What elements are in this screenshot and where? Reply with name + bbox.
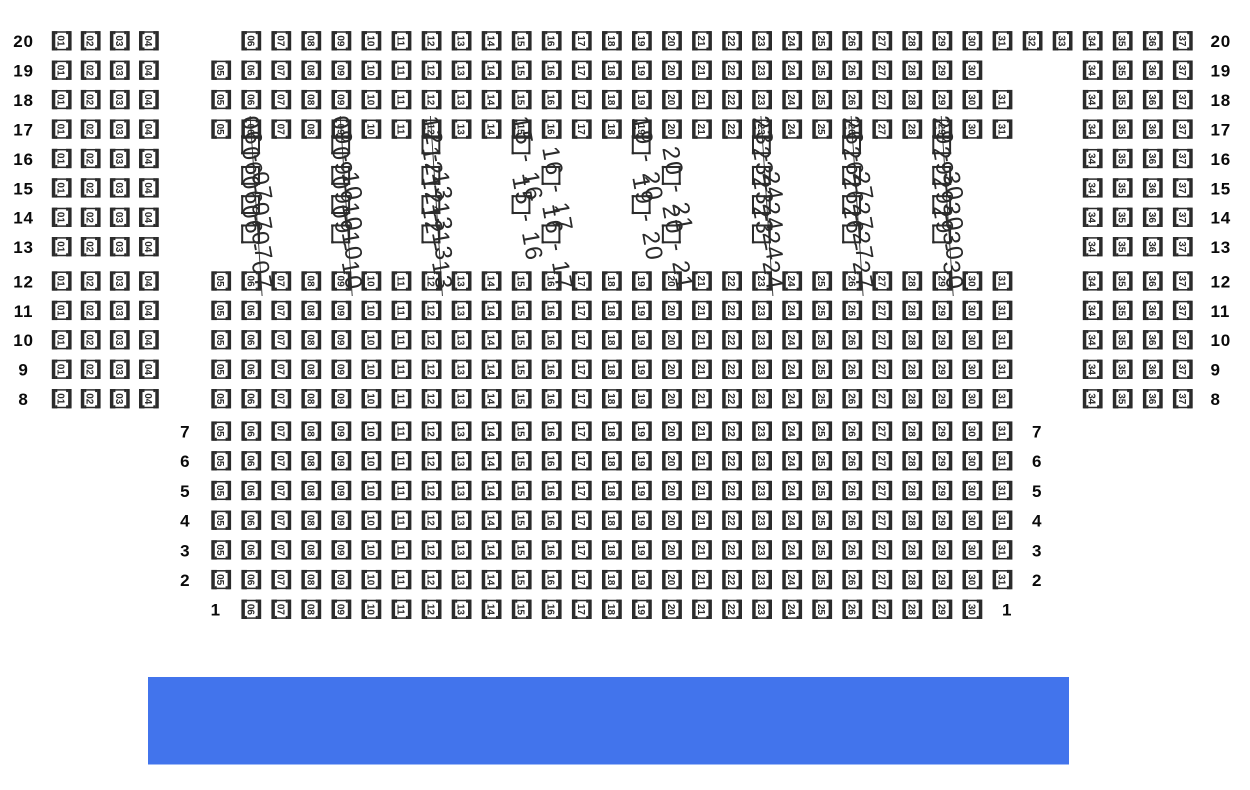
svg-text:36: 36 — [1146, 212, 1157, 224]
svg-text:15: 15 — [515, 276, 526, 288]
svg-text:04: 04 — [142, 212, 153, 224]
svg-text:2: 2 — [1032, 571, 1042, 590]
svg-text:02: 02 — [84, 212, 95, 224]
svg-text:23: 23 — [755, 604, 766, 616]
svg-text:21: 21 — [695, 604, 706, 616]
svg-text:11: 11 — [395, 515, 406, 526]
svg-text:05: 05 — [214, 574, 225, 586]
svg-text:13: 13 — [455, 124, 466, 136]
svg-text:04: 04 — [142, 305, 153, 317]
svg-text:09: 09 — [334, 455, 345, 467]
svg-text:36: 36 — [1146, 153, 1157, 165]
svg-text:35: 35 — [1116, 94, 1127, 106]
svg-text:37: 37 — [1176, 153, 1187, 165]
svg-text:5: 5 — [1032, 482, 1042, 501]
svg-text:35: 35 — [1116, 241, 1127, 253]
svg-text:36: 36 — [1146, 241, 1157, 253]
svg-text:11: 11 — [395, 604, 406, 615]
svg-text:07: 07 — [274, 334, 285, 346]
svg-text:26: 26 — [845, 426, 856, 438]
svg-text:17: 17 — [575, 544, 586, 556]
svg-text:16: 16 — [545, 94, 556, 106]
svg-text:29: 29 — [935, 35, 946, 47]
svg-text:09: 09 — [334, 364, 345, 376]
svg-text:23: 23 — [755, 35, 766, 47]
svg-text:25: 25 — [815, 485, 826, 497]
svg-text:17: 17 — [575, 485, 586, 497]
svg-text:35: 35 — [1116, 153, 1127, 165]
svg-text:24: 24 — [785, 393, 796, 405]
svg-text:05: 05 — [214, 276, 225, 288]
svg-text:20: 20 — [13, 32, 34, 51]
svg-text:02: 02 — [84, 241, 95, 253]
svg-text:19: 19 — [635, 544, 646, 556]
svg-text:12: 12 — [425, 364, 436, 376]
svg-text:01: 01 — [55, 364, 66, 376]
svg-text:28: 28 — [905, 455, 916, 467]
svg-text:09: 09 — [334, 65, 345, 77]
svg-text:31: 31 — [996, 305, 1007, 317]
svg-text:26: 26 — [845, 364, 856, 376]
svg-text:18: 18 — [605, 305, 616, 317]
svg-text:36: 36 — [1146, 124, 1157, 136]
svg-text:30: 30 — [966, 604, 977, 616]
svg-text:1: 1 — [1002, 601, 1012, 620]
svg-text:03: 03 — [113, 276, 124, 288]
svg-text:08: 08 — [304, 544, 315, 556]
svg-text:16: 16 — [545, 124, 556, 136]
svg-text:21: 21 — [695, 455, 706, 467]
svg-text:35: 35 — [1116, 393, 1127, 405]
svg-text:08: 08 — [304, 305, 315, 317]
svg-text:28: 28 — [905, 364, 916, 376]
svg-text:04: 04 — [142, 182, 153, 194]
svg-text:15: 15 — [515, 455, 526, 467]
svg-text:25: 25 — [815, 305, 826, 317]
svg-text:14: 14 — [485, 305, 496, 317]
svg-text:05: 05 — [214, 485, 225, 497]
svg-text:29: 29 — [935, 65, 946, 77]
svg-text:25: 25 — [815, 35, 826, 47]
svg-text:23: 23 — [755, 393, 766, 405]
svg-text:01: 01 — [55, 305, 66, 317]
svg-text:19: 19 — [13, 62, 34, 81]
svg-text:01: 01 — [55, 65, 66, 77]
svg-text:37: 37 — [1176, 364, 1187, 376]
svg-text:20: 20 — [665, 515, 676, 527]
svg-text:25: 25 — [815, 455, 826, 467]
svg-text:34: 34 — [1086, 364, 1097, 376]
svg-text:02: 02 — [84, 276, 95, 288]
svg-text:14: 14 — [485, 334, 496, 346]
svg-text:01: 01 — [55, 153, 66, 165]
svg-text:27: 27 — [875, 334, 886, 346]
svg-text:12: 12 — [425, 94, 436, 106]
svg-text:29: 29 — [935, 485, 946, 497]
svg-text:27: 27 — [875, 574, 886, 586]
svg-text:05: 05 — [214, 544, 225, 556]
svg-text:03: 03 — [113, 364, 124, 376]
svg-text:08: 08 — [304, 393, 315, 405]
svg-text:07: 07 — [274, 124, 285, 136]
svg-text:36: 36 — [1146, 35, 1157, 47]
svg-text:16: 16 — [545, 364, 556, 376]
svg-text:30: 30 — [966, 124, 977, 136]
svg-text:04: 04 — [142, 153, 153, 165]
svg-text:37: 37 — [1176, 182, 1187, 194]
svg-text:24: 24 — [785, 94, 796, 106]
svg-text:05: 05 — [214, 305, 225, 317]
svg-text:19: 19 — [635, 334, 646, 346]
svg-text:07: 07 — [274, 544, 285, 556]
svg-text:24: 24 — [785, 124, 796, 136]
svg-text:21: 21 — [695, 426, 706, 438]
svg-text:06: 06 — [244, 65, 255, 77]
svg-text:13: 13 — [1211, 238, 1232, 257]
svg-text:20: 20 — [665, 604, 676, 616]
svg-text:34: 34 — [1086, 182, 1097, 194]
svg-text:18: 18 — [605, 364, 616, 376]
svg-text:26: 26 — [845, 393, 856, 405]
svg-text:16: 16 — [545, 455, 556, 467]
svg-text:15: 15 — [515, 515, 526, 527]
svg-text:18: 18 — [605, 515, 616, 527]
svg-text:23: 23 — [755, 426, 766, 438]
svg-text:28: 28 — [905, 305, 916, 317]
svg-text:24: 24 — [785, 515, 796, 527]
svg-text:08: 08 — [304, 276, 315, 288]
svg-text:09: 09 — [334, 35, 345, 47]
svg-text:25: 25 — [815, 393, 826, 405]
svg-text:28: 28 — [905, 65, 916, 77]
svg-text:28: 28 — [905, 124, 916, 136]
svg-text:15: 15 — [515, 485, 526, 497]
svg-text:10: 10 — [364, 393, 375, 405]
svg-text:20: 20 — [665, 334, 676, 346]
svg-text:23: 23 — [755, 515, 766, 527]
svg-text:13: 13 — [13, 238, 34, 257]
svg-text:18: 18 — [605, 485, 616, 497]
svg-text:22: 22 — [725, 455, 736, 467]
svg-text:08: 08 — [304, 455, 315, 467]
svg-text:07: 07 — [274, 393, 285, 405]
svg-text:35: 35 — [1116, 124, 1127, 136]
svg-text:22: 22 — [725, 515, 736, 527]
svg-text:6: 6 — [180, 452, 190, 471]
svg-text:05: 05 — [214, 515, 225, 527]
svg-text:29: 29 — [935, 515, 946, 527]
svg-text:31: 31 — [996, 276, 1007, 288]
svg-text:14: 14 — [485, 544, 496, 556]
svg-text:6: 6 — [1032, 452, 1042, 471]
svg-text:06: 06 — [244, 604, 255, 616]
svg-text:10: 10 — [364, 35, 375, 47]
svg-text:14: 14 — [1211, 209, 1232, 228]
svg-text:24: 24 — [785, 604, 796, 616]
svg-text:23: 23 — [755, 574, 766, 586]
svg-text:10: 10 — [364, 364, 375, 376]
svg-text:24: 24 — [785, 544, 796, 556]
svg-text:06: 06 — [244, 364, 255, 376]
svg-text:7: 7 — [1032, 423, 1042, 442]
svg-text:25: 25 — [815, 276, 826, 288]
svg-text:08: 08 — [304, 364, 315, 376]
svg-text:21: 21 — [695, 305, 706, 317]
svg-text:18: 18 — [605, 544, 616, 556]
svg-text:14: 14 — [485, 276, 496, 288]
svg-text:17: 17 — [575, 94, 586, 106]
svg-text:22: 22 — [725, 485, 736, 497]
svg-text:37: 37 — [1176, 65, 1187, 77]
svg-text:12: 12 — [425, 35, 436, 47]
svg-text:26: 26 — [845, 515, 856, 527]
svg-text:12: 12 — [425, 426, 436, 438]
svg-text:31: 31 — [996, 334, 1007, 346]
svg-text:18: 18 — [1211, 91, 1232, 110]
svg-text:13: 13 — [455, 94, 466, 106]
svg-text:33: 33 — [1056, 35, 1067, 47]
svg-text:03: 03 — [113, 393, 124, 405]
svg-text:14: 14 — [485, 393, 496, 405]
svg-text:11: 11 — [395, 364, 406, 375]
svg-text:05: 05 — [214, 455, 225, 467]
svg-text:09: 09 — [334, 544, 345, 556]
svg-text:19: 19 — [635, 35, 646, 47]
svg-text:20: 20 — [665, 124, 676, 136]
svg-text:22: 22 — [725, 124, 736, 136]
svg-text:28: 28 — [905, 515, 916, 527]
svg-text:17: 17 — [575, 334, 586, 346]
svg-text:10: 10 — [364, 305, 375, 317]
svg-text:16: 16 — [1211, 150, 1232, 169]
svg-text:02: 02 — [84, 35, 95, 47]
svg-text:20: 20 — [665, 544, 676, 556]
svg-text:19: 19 — [635, 65, 646, 77]
svg-text:16: 16 — [545, 305, 556, 317]
svg-text:28: 28 — [905, 94, 916, 106]
svg-text:21: 21 — [695, 94, 706, 106]
svg-text:20: 20 — [1211, 32, 1232, 51]
svg-text:08: 08 — [304, 515, 315, 527]
svg-text:12: 12 — [425, 515, 436, 527]
svg-text:13: 13 — [455, 485, 466, 497]
svg-text:07: 07 — [274, 65, 285, 77]
svg-text:17: 17 — [575, 364, 586, 376]
svg-text:04: 04 — [142, 364, 153, 376]
svg-text:13: 13 — [455, 305, 466, 317]
svg-text:07: 07 — [274, 485, 285, 497]
svg-text:16: 16 — [545, 334, 556, 346]
svg-text:7: 7 — [180, 423, 190, 442]
svg-text:27: 27 — [875, 364, 886, 376]
svg-text:14: 14 — [485, 65, 496, 77]
svg-text:12: 12 — [425, 305, 436, 317]
svg-text:19: 19 — [635, 393, 646, 405]
svg-text:30: 30 — [966, 393, 977, 405]
svg-text:13: 13 — [455, 35, 466, 47]
svg-text:17: 17 — [575, 426, 586, 438]
svg-text:34: 34 — [1086, 241, 1097, 253]
svg-text:08: 08 — [304, 485, 315, 497]
svg-text:11: 11 — [1211, 302, 1231, 321]
svg-text:09: 09 — [334, 574, 345, 586]
svg-text:30: 30 — [966, 455, 977, 467]
svg-text:05: 05 — [214, 124, 225, 136]
svg-text:27: 27 — [875, 124, 886, 136]
svg-text:30: 30 — [966, 574, 977, 586]
svg-text:01: 01 — [55, 94, 66, 106]
svg-text:05: 05 — [214, 334, 225, 346]
svg-text:10: 10 — [364, 455, 375, 467]
svg-text:25: 25 — [815, 124, 826, 136]
svg-text:19: 19 — [635, 426, 646, 438]
svg-text:11: 11 — [395, 65, 406, 76]
svg-text:18: 18 — [605, 94, 616, 106]
svg-text:01: 01 — [55, 124, 66, 136]
svg-text:13: 13 — [455, 65, 466, 77]
svg-text:4: 4 — [1032, 512, 1042, 531]
svg-text:15: 15 — [1211, 179, 1232, 198]
svg-text:09: 09 — [334, 485, 345, 497]
svg-text:11: 11 — [395, 574, 406, 585]
svg-text:2: 2 — [180, 571, 190, 590]
svg-text:24: 24 — [785, 35, 796, 47]
svg-text:12: 12 — [425, 334, 436, 346]
svg-text:10: 10 — [364, 515, 375, 527]
svg-text:06: 06 — [244, 455, 255, 467]
svg-text:05: 05 — [214, 393, 225, 405]
svg-text:16: 16 — [545, 35, 556, 47]
svg-text:05: 05 — [214, 426, 225, 438]
svg-text:20: 20 — [665, 65, 676, 77]
svg-text:31: 31 — [996, 455, 1007, 467]
svg-text:21: 21 — [695, 334, 706, 346]
svg-text:03: 03 — [113, 94, 124, 106]
svg-text:14: 14 — [485, 515, 496, 527]
svg-text:13: 13 — [455, 455, 466, 467]
svg-text:07: 07 — [274, 364, 285, 376]
svg-text:17: 17 — [575, 604, 586, 616]
svg-text:26: 26 — [845, 334, 856, 346]
svg-text:8: 8 — [18, 390, 28, 409]
svg-text:36: 36 — [1146, 334, 1157, 346]
svg-text:21: 21 — [695, 485, 706, 497]
svg-text:21: 21 — [695, 515, 706, 527]
svg-text:18: 18 — [605, 455, 616, 467]
svg-text:09: 09 — [334, 305, 345, 317]
svg-text:18: 18 — [605, 393, 616, 405]
svg-text:07: 07 — [274, 604, 285, 616]
svg-text:11: 11 — [395, 94, 406, 105]
svg-text:02: 02 — [84, 334, 95, 346]
svg-text:17: 17 — [575, 124, 586, 136]
svg-text:03: 03 — [113, 241, 124, 253]
svg-text:11: 11 — [395, 335, 406, 346]
svg-text:15: 15 — [515, 426, 526, 438]
svg-text:35: 35 — [1116, 364, 1127, 376]
svg-text:16: 16 — [545, 393, 556, 405]
svg-text:16: 16 — [545, 515, 556, 527]
svg-text:02: 02 — [84, 364, 95, 376]
svg-text:30: 30 — [966, 94, 977, 106]
svg-text:27: 27 — [875, 94, 886, 106]
svg-text:25: 25 — [815, 604, 826, 616]
svg-text:25: 25 — [815, 364, 826, 376]
svg-text:12: 12 — [425, 574, 436, 586]
svg-text:13: 13 — [455, 544, 466, 556]
svg-text:29: 29 — [935, 364, 946, 376]
svg-text:26: 26 — [845, 485, 856, 497]
svg-text:04: 04 — [142, 124, 153, 136]
svg-text:27: 27 — [875, 65, 886, 77]
svg-text:30: 30 — [966, 334, 977, 346]
svg-text:25: 25 — [815, 334, 826, 346]
svg-text:18: 18 — [605, 604, 616, 616]
svg-text:9: 9 — [1211, 361, 1221, 380]
svg-text:25: 25 — [815, 515, 826, 527]
svg-text:22: 22 — [725, 544, 736, 556]
svg-text:16: 16 — [545, 544, 556, 556]
svg-text:24: 24 — [785, 485, 796, 497]
svg-text:25: 25 — [815, 65, 826, 77]
svg-text:27: 27 — [875, 455, 886, 467]
svg-text:20: 20 — [665, 94, 676, 106]
svg-text:37: 37 — [1176, 124, 1187, 136]
svg-text:07: 07 — [274, 515, 285, 527]
svg-text:08: 08 — [304, 124, 315, 136]
svg-text:28: 28 — [905, 574, 916, 586]
svg-text:12: 12 — [425, 393, 436, 405]
svg-text:20: 20 — [665, 574, 676, 586]
svg-text:37: 37 — [1176, 35, 1187, 47]
svg-text:19: 19 — [635, 515, 646, 527]
svg-text:24: 24 — [785, 334, 796, 346]
svg-text:10: 10 — [1211, 331, 1232, 350]
svg-text:30: 30 — [966, 35, 977, 47]
svg-text:14: 14 — [13, 209, 34, 228]
svg-text:18: 18 — [13, 91, 34, 110]
svg-text:14: 14 — [485, 604, 496, 616]
svg-text:31: 31 — [996, 35, 1007, 47]
svg-text:03: 03 — [113, 124, 124, 136]
svg-text:13: 13 — [455, 334, 466, 346]
svg-text:08: 08 — [304, 426, 315, 438]
svg-text:11: 11 — [395, 394, 406, 405]
svg-text:12: 12 — [425, 604, 436, 616]
svg-text:19: 19 — [635, 364, 646, 376]
svg-text:08: 08 — [304, 65, 315, 77]
svg-text:02: 02 — [84, 65, 95, 77]
svg-text:09: 09 — [334, 515, 345, 527]
svg-text:15: 15 — [515, 305, 526, 317]
svg-text:11: 11 — [395, 456, 406, 467]
svg-text:29: 29 — [935, 455, 946, 467]
svg-text:28: 28 — [905, 426, 916, 438]
svg-text:13: 13 — [455, 426, 466, 438]
svg-text:19: 19 — [635, 94, 646, 106]
svg-text:10: 10 — [364, 94, 375, 106]
svg-text:28: 28 — [905, 334, 916, 346]
svg-text:23: 23 — [755, 364, 766, 376]
svg-text:20: 20 — [665, 305, 676, 317]
svg-text:01: 01 — [55, 212, 66, 224]
svg-text:25: 25 — [815, 94, 826, 106]
svg-text:27: 27 — [875, 515, 886, 527]
svg-text:09: 09 — [334, 393, 345, 405]
svg-text:12: 12 — [425, 455, 436, 467]
svg-text:23: 23 — [755, 485, 766, 497]
svg-text:30: 30 — [966, 364, 977, 376]
